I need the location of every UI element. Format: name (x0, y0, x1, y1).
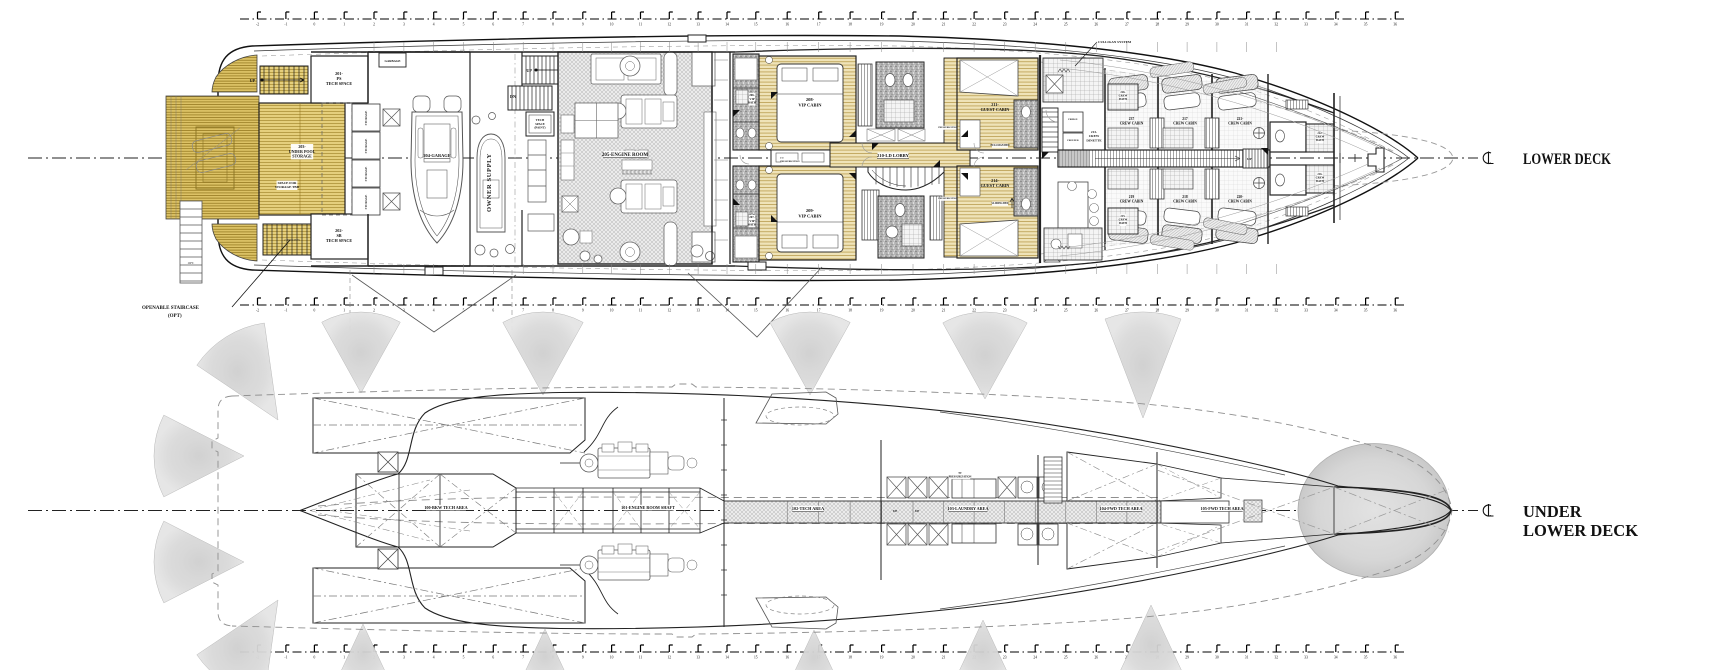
svg-text:218: 218 (1182, 195, 1188, 199)
svg-text:208-: 208- (806, 97, 815, 102)
svg-text:PRESSURIZATION: PRESSURIZATION (780, 160, 800, 163)
svg-text:209-: 209- (806, 208, 815, 213)
svg-text:29: 29 (1185, 309, 1189, 313)
svg-text:26: 26 (1095, 309, 1099, 313)
svg-text:UP: UP (526, 68, 532, 73)
svg-text:7: 7 (522, 309, 524, 313)
svg-text:32: 32 (1275, 23, 1279, 27)
svg-text:34: 34 (1334, 23, 1338, 27)
svg-text:24: 24 (1033, 309, 1037, 313)
svg-text:19: 19 (880, 309, 884, 313)
svg-text:20: 20 (911, 23, 915, 27)
svg-text:104-FWD TECH AREA: 104-FWD TECH AREA (1100, 506, 1143, 511)
svg-text:-2: -2 (256, 23, 259, 27)
svg-text:STORAGE TBD: STORAGE TBD (275, 185, 300, 189)
svg-text:210-LD LOBBY: 210-LD LOBBY (877, 153, 910, 158)
svg-text:35: 35 (1364, 656, 1368, 660)
svg-text:CREW CABIN: CREW CABIN (1120, 121, 1144, 125)
svg-text:21: 21 (942, 656, 946, 660)
svg-text:16: 16 (785, 309, 789, 313)
svg-text:27: 27 (1125, 309, 1129, 313)
svg-text:STORAGE: STORAGE (364, 139, 368, 154)
svg-text:PRESSURIZATION: PRESSURIZATION (938, 197, 958, 200)
svg-text:20: 20 (911, 656, 915, 660)
svg-text:219: 219 (1129, 195, 1135, 199)
svg-text:36: 36 (1394, 309, 1398, 313)
svg-text:220-: 220- (1237, 195, 1244, 199)
svg-text:16: 16 (785, 23, 789, 27)
svg-text:BATH: BATH (748, 223, 757, 227)
svg-text:4: 4 (433, 23, 435, 27)
svg-text:GUEST CABIN: GUEST CABIN (981, 107, 1010, 112)
svg-text:21: 21 (942, 309, 946, 313)
svg-text:6: 6 (492, 23, 494, 27)
svg-text:24: 24 (1033, 656, 1037, 660)
svg-text:CREW: CREW (1316, 177, 1325, 180)
svg-text:18: 18 (848, 309, 852, 313)
svg-text:32: 32 (1275, 309, 1279, 313)
svg-text:CREW CABIN: CREW CABIN (1120, 199, 1144, 203)
svg-text:25: 25 (1064, 23, 1068, 27)
svg-text:FRIDGE: FRIDGE (1068, 118, 1078, 121)
svg-text:PULLMAN BED: PULLMAN BED (990, 144, 1009, 147)
svg-text:0: 0 (314, 656, 316, 660)
svg-text:26: 26 (1095, 656, 1099, 660)
svg-text:-1: -1 (284, 309, 287, 313)
svg-text:7: 7 (522, 656, 524, 660)
svg-text:19: 19 (880, 656, 884, 660)
svg-text:(PAINT): (PAINT) (534, 126, 545, 130)
svg-text:16: 16 (785, 656, 789, 660)
svg-text:3: 3 (403, 656, 405, 660)
svg-text:30: 30 (1215, 23, 1219, 27)
svg-text:OWNER SUPPLY: OWNER SUPPLY (486, 153, 493, 212)
svg-text:2: 2 (373, 23, 375, 27)
svg-text:10: 10 (610, 656, 614, 660)
svg-text:29: 29 (1185, 23, 1189, 27)
svg-text:-1: -1 (284, 656, 287, 660)
svg-text:BATH: BATH (1316, 139, 1325, 142)
svg-text:CREW CABIN: CREW CABIN (1228, 199, 1252, 203)
svg-text:DINETTE: DINETTE (1086, 138, 1102, 142)
svg-text:20: 20 (911, 309, 915, 313)
svg-text:22: 22 (972, 309, 976, 313)
svg-text:9: 9 (582, 309, 584, 313)
svg-text:CREW CABIN: CREW CABIN (1173, 121, 1197, 125)
svg-text:4: 4 (433, 309, 435, 313)
svg-text:0: 0 (314, 309, 316, 313)
svg-text:215-: 215- (1120, 215, 1125, 218)
svg-text:BATH: BATH (1119, 98, 1128, 101)
svg-text:221-: 221- (1237, 117, 1244, 121)
svg-text:216-: 216- (1317, 173, 1322, 176)
svg-text:28: 28 (1156, 23, 1160, 27)
svg-text:STORAGE: STORAGE (364, 111, 368, 126)
svg-text:33: 33 (1304, 656, 1308, 660)
svg-text:1: 1 (343, 23, 345, 27)
svg-text:-2: -2 (256, 309, 259, 313)
svg-text:36: 36 (1394, 656, 1398, 660)
svg-text:TECH SPACE: TECH SPACE (326, 81, 353, 86)
svg-text:10: 10 (610, 309, 614, 313)
svg-text:12: 12 (668, 309, 672, 313)
svg-text:GUEST CABIN: GUEST CABIN (981, 183, 1010, 188)
svg-text:15: 15 (754, 23, 758, 27)
svg-text:11: 11 (639, 656, 643, 660)
svg-text:217: 217 (1182, 117, 1188, 121)
svg-text:UP: UP (250, 78, 256, 83)
svg-text:14: 14 (725, 656, 729, 660)
svg-text:PRESSURIZATION: PRESSURIZATION (949, 475, 972, 478)
svg-text:102-TECH AREA: 102-TECH AREA (792, 506, 824, 511)
svg-text:LOWER DECK: LOWER DECK (1523, 151, 1611, 168)
svg-text:14: 14 (725, 23, 729, 27)
svg-text:STORAGE: STORAGE (364, 167, 368, 182)
svg-text:FREEZER: FREEZER (1067, 139, 1079, 142)
svg-text:23: 23 (1003, 23, 1007, 27)
svg-text:100-BKW TECH AREA: 100-BKW TECH AREA (424, 505, 467, 510)
svg-text:OPT.: OPT. (188, 261, 195, 265)
svg-text:6: 6 (492, 309, 494, 313)
svg-text:13: 13 (696, 309, 700, 313)
svg-text:26: 26 (1095, 23, 1099, 27)
svg-text:5: 5 (463, 23, 465, 27)
svg-text:12: 12 (668, 656, 672, 660)
svg-text:15: 15 (754, 656, 758, 660)
svg-text:BATH: BATH (748, 101, 757, 105)
svg-text:18: 18 (848, 23, 852, 27)
svg-text:15: 15 (754, 309, 758, 313)
svg-text:31: 31 (1245, 309, 1249, 313)
svg-text:10: 10 (610, 23, 614, 27)
svg-text:29: 29 (1185, 656, 1189, 660)
svg-text:GARBAGE: GARBAGE (384, 59, 400, 63)
svg-text:CREW: CREW (1316, 136, 1325, 139)
svg-text:DN: DN (510, 94, 516, 99)
svg-text:UP: UP (893, 509, 897, 513)
svg-text:CREW: CREW (1119, 219, 1128, 222)
svg-text:23: 23 (1003, 656, 1007, 660)
svg-text:3: 3 (403, 23, 405, 27)
svg-text:CREW: CREW (1119, 95, 1128, 98)
svg-text:2: 2 (373, 309, 375, 313)
svg-text:STORAGE: STORAGE (364, 195, 368, 210)
svg-text:CREW CABIN: CREW CABIN (1173, 199, 1197, 203)
svg-text:8: 8 (552, 309, 554, 313)
svg-text:13: 13 (696, 656, 700, 660)
svg-text:33: 33 (1304, 23, 1308, 27)
svg-text:BATH: BATH (1119, 222, 1128, 225)
svg-text:31: 31 (1245, 656, 1249, 660)
svg-text:237: 237 (1129, 117, 1135, 121)
svg-text:24: 24 (1033, 23, 1037, 27)
svg-text:226-: 226- (1120, 91, 1125, 94)
svg-text:PRESSURIZATION: PRESSURIZATION (938, 126, 958, 129)
svg-text:19: 19 (880, 23, 884, 27)
svg-text:1: 1 (343, 656, 345, 660)
svg-text:34: 34 (1334, 656, 1338, 660)
svg-text:STORAGE: STORAGE (292, 154, 312, 159)
svg-text:13: 13 (696, 23, 700, 27)
svg-text:11: 11 (639, 23, 643, 27)
svg-text:30: 30 (1215, 309, 1219, 313)
svg-text:32: 32 (1275, 656, 1279, 660)
svg-text:105-FWD TECH AREA: 105-FWD TECH AREA (1201, 506, 1244, 511)
svg-text:12: 12 (668, 23, 672, 27)
svg-text:35: 35 (1364, 309, 1368, 313)
svg-text:18: 18 (848, 656, 852, 660)
svg-text:-1: -1 (284, 23, 287, 27)
svg-text:33: 33 (1304, 309, 1308, 313)
svg-text:31: 31 (1245, 23, 1249, 27)
svg-text:UP: UP (915, 509, 919, 513)
svg-text:35: 35 (1364, 23, 1368, 27)
svg-text:11: 11 (639, 309, 643, 313)
svg-text:UNDER: UNDER (1523, 502, 1583, 521)
svg-text:LOWER DECK: LOWER DECK (1523, 521, 1638, 540)
svg-text:25: 25 (1064, 656, 1068, 660)
svg-text:101-ENGINE ROOM SHAFT: 101-ENGINE ROOM SHAFT (621, 505, 675, 510)
svg-text:27: 27 (1125, 23, 1129, 27)
svg-text:5: 5 (463, 656, 465, 660)
svg-text:SLIDING BED: SLIDING BED (992, 202, 1009, 205)
svg-text:9: 9 (582, 656, 584, 660)
svg-text:103-LAUNDRY AREA: 103-LAUNDRY AREA (948, 506, 989, 511)
svg-text:OPENABLE STAIRCASE: OPENABLE STAIRCASE (142, 306, 200, 311)
svg-text:9: 9 (582, 23, 584, 27)
svg-text:VIP CABIN: VIP CABIN (798, 102, 822, 107)
svg-text:34: 34 (1334, 309, 1338, 313)
svg-text:(OPT): (OPT) (168, 314, 182, 319)
svg-text:4: 4 (433, 656, 435, 660)
svg-text:CREW CABIN: CREW CABIN (1228, 121, 1252, 125)
svg-text:17: 17 (817, 23, 821, 27)
svg-text:VIP CABIN: VIP CABIN (798, 213, 822, 218)
svg-text:6: 6 (492, 656, 494, 660)
svg-text:204-GARAGE: 204-GARAGE (423, 153, 450, 158)
svg-text:2 BENCHES: 2 BENCHES (284, 238, 300, 242)
svg-text:23: 23 (1003, 309, 1007, 313)
svg-text:30: 30 (1215, 656, 1219, 660)
svg-text:1: 1 (343, 309, 345, 313)
svg-text:21: 21 (942, 23, 946, 27)
svg-text:TECH SPACE: TECH SPACE (326, 238, 353, 243)
svg-text:36: 36 (1394, 23, 1398, 27)
svg-text:UP: UP (1247, 157, 1252, 161)
svg-text:22: 22 (972, 23, 976, 27)
svg-text:7: 7 (522, 23, 524, 27)
svg-text:0: 0 (314, 23, 316, 27)
svg-text:28: 28 (1156, 309, 1160, 313)
svg-text:8: 8 (552, 23, 554, 27)
svg-text:17: 17 (817, 309, 821, 313)
svg-text:25: 25 (1064, 309, 1068, 313)
